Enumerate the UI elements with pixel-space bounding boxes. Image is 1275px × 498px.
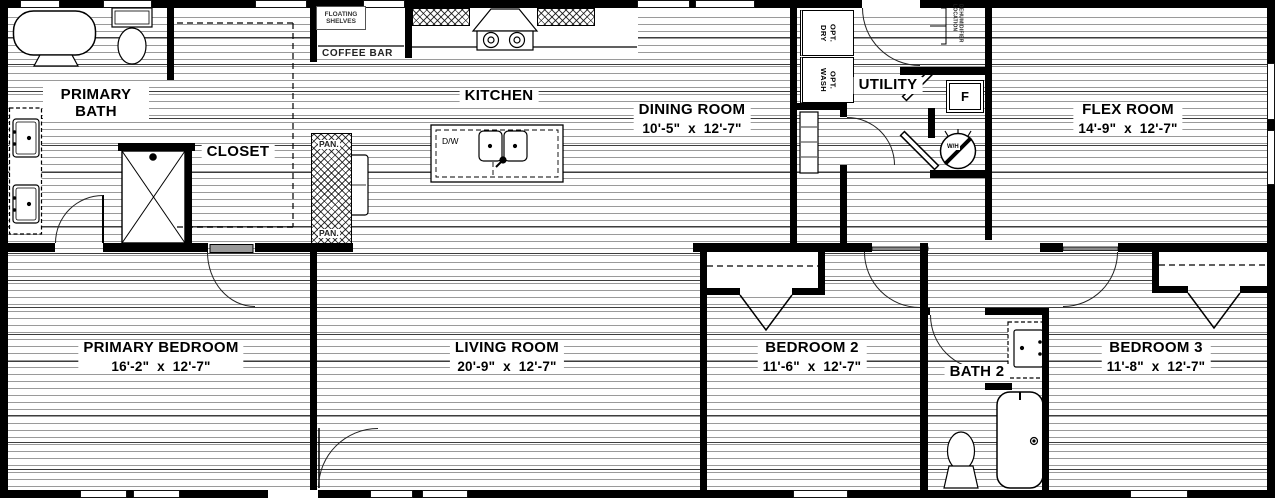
wall <box>900 67 988 75</box>
wall <box>920 308 930 315</box>
sink-drain <box>28 203 31 206</box>
water-heater-tick <box>945 131 948 136</box>
back-door-opening <box>862 0 920 8</box>
bath2-sink <box>1014 330 1043 367</box>
bathtub <box>14 11 96 55</box>
dehumidifier-note: DEHUMIDIFIER LOCATION <box>951 4 964 52</box>
room-name: KITCHEN <box>465 88 534 105</box>
front-door-opening <box>268 490 318 498</box>
wall <box>0 243 55 252</box>
room-dims: 20'-9" x 12'-7" <box>455 359 559 374</box>
room-label-primary-bedroom: PRIMARY BEDROOM 16'-2" x 12'-7" <box>78 340 243 374</box>
room-label-primary-bath: PRIMARY BATH <box>43 87 149 121</box>
counter-hatch-left <box>412 8 470 26</box>
room-dims: 16'-2" x 12'-7" <box>83 359 238 374</box>
wall <box>0 490 1275 498</box>
sink-drain <box>514 145 517 148</box>
wall <box>700 243 707 490</box>
wall <box>930 170 988 178</box>
room-label-dining-room: DINING ROOM 10'-5" x 12'-7" <box>634 102 751 136</box>
window <box>20 0 60 8</box>
wall <box>840 103 847 117</box>
wall <box>310 243 317 490</box>
wall <box>1040 243 1063 252</box>
range-hood <box>473 9 537 31</box>
room-name: BATH 2 <box>950 364 1005 381</box>
vanity-sink-2 <box>13 185 39 223</box>
washer-label: OPT. WASH <box>819 67 838 93</box>
pantry-label-lower: PAN. <box>318 229 340 238</box>
window <box>422 490 468 498</box>
room-dims: 10'-5" x 12'-7" <box>639 121 746 136</box>
bath2-tub <box>997 392 1043 488</box>
wall <box>928 108 935 138</box>
floating-shelves-callout: FLOATING SHELVES <box>316 6 366 30</box>
room-name: DINING ROOM <box>639 102 746 119</box>
window <box>255 0 307 8</box>
room-label-bedroom-2: BEDROOM 2 11'-6" x 12'-7" <box>758 340 867 374</box>
sink-drain <box>489 145 492 148</box>
window <box>80 490 127 498</box>
window <box>133 490 180 498</box>
shower-head <box>150 154 156 160</box>
room-label-bedroom-3: BEDROOM 3 11'-8" x 12'-7" <box>1102 340 1211 374</box>
faucet-dot <box>13 197 15 199</box>
bedroom3-bifold-door <box>1188 293 1240 328</box>
wall <box>797 103 843 110</box>
wall <box>985 383 1012 390</box>
room-label-living-room: LIVING ROOM 20'-9" x 12'-7" <box>450 340 564 374</box>
window <box>363 0 405 8</box>
wall <box>185 143 192 243</box>
room-name: FLEX ROOM <box>1078 102 1177 119</box>
room-name: UTILITY <box>859 77 918 94</box>
window <box>370 490 413 498</box>
window <box>637 0 690 8</box>
pantry-label-upper: PAN. <box>318 140 340 149</box>
louver-door-lower-face <box>903 134 936 167</box>
wall <box>693 243 872 252</box>
water-heater-tick <box>968 131 971 136</box>
bathtub-step <box>34 55 78 66</box>
wall <box>1152 286 1188 293</box>
counter-hatch-right <box>537 8 595 26</box>
wall <box>405 0 412 58</box>
floating-shelves-label: FLOATING SHELVES <box>317 11 365 26</box>
room-label-flex-room: FLEX ROOM 14'-9" x 12'-7" <box>1073 102 1182 136</box>
wall <box>167 0 174 80</box>
dishwasher-label: D/W <box>441 137 460 146</box>
room-name: BEDROOM 3 <box>1107 340 1206 357</box>
dryer-label: OPT. DRY <box>819 20 838 46</box>
wall <box>792 288 825 295</box>
room-label-utility: UTILITY <box>854 77 923 94</box>
sink-drain <box>1021 347 1024 350</box>
faucet-dot <box>13 131 15 133</box>
window <box>695 0 755 8</box>
floor-plan-canvas: OPT. DRY OPT. WASH F FLOATING SHELVES CO… <box>0 0 1275 498</box>
window <box>793 490 848 498</box>
window <box>1267 63 1275 120</box>
bath2-toilet-bowl <box>948 432 975 470</box>
coffee-bar-label: COFFEE BAR <box>322 48 393 59</box>
washer-box: OPT. WASH <box>800 57 854 103</box>
room-dims: 11'-8" x 12'-7" <box>1107 359 1206 374</box>
room-name: LIVING ROOM <box>455 340 559 357</box>
room-label-kitchen: KITCHEN <box>460 88 539 105</box>
wall <box>920 243 928 490</box>
vanity-sink-1 <box>13 119 39 157</box>
wall <box>103 243 208 252</box>
sink-drain <box>28 137 31 140</box>
furnace-box: F <box>946 80 984 113</box>
faucet-dot <box>13 143 15 145</box>
wall <box>790 0 797 245</box>
room-name: CLOSET <box>207 144 270 161</box>
wall <box>985 308 1048 315</box>
linen-shelves <box>800 112 818 173</box>
toilet-bowl <box>118 28 146 64</box>
bath2-tub-knob-dot <box>1033 440 1035 442</box>
door-leaf <box>1063 247 1118 251</box>
dryer-box: OPT. DRY <box>800 10 854 56</box>
bath2-toilet-base <box>944 466 978 488</box>
room-name: PRIMARY BATH <box>48 87 144 121</box>
furnace-label: F <box>961 89 969 104</box>
window <box>103 0 152 8</box>
window <box>1267 130 1275 185</box>
room-label-closet: CLOSET <box>202 144 275 161</box>
wall <box>985 0 992 240</box>
faucet-dot <box>1039 341 1041 343</box>
dehumidifier-bracket <box>930 8 946 44</box>
water-heater-label: W/H <box>946 144 960 150</box>
wall <box>1118 243 1275 252</box>
wall <box>255 243 353 252</box>
window <box>1130 490 1188 498</box>
wall <box>1042 308 1049 490</box>
wall <box>1240 286 1267 293</box>
faucet-dot <box>13 209 15 211</box>
faucet-dot <box>1039 353 1041 355</box>
room-dims: 14'-9" x 12'-7" <box>1078 121 1177 136</box>
room-dims: 11'-6" x 12'-7" <box>763 359 862 374</box>
room-name: PRIMARY BEDROOM <box>83 340 238 357</box>
wall <box>700 288 740 295</box>
wall <box>118 143 195 151</box>
bedroom2-bifold-door <box>740 295 792 330</box>
wall <box>840 165 847 245</box>
room-name: BEDROOM 2 <box>763 340 862 357</box>
room-label-bath-2: BATH 2 <box>945 364 1010 381</box>
